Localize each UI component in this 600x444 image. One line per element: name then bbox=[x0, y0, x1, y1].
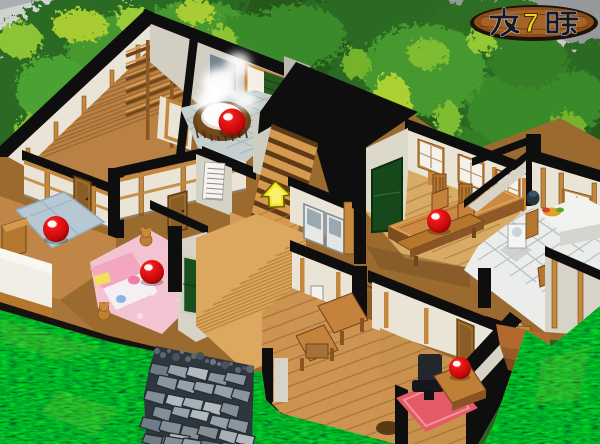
svg-text:7: 7 bbox=[523, 8, 538, 38]
